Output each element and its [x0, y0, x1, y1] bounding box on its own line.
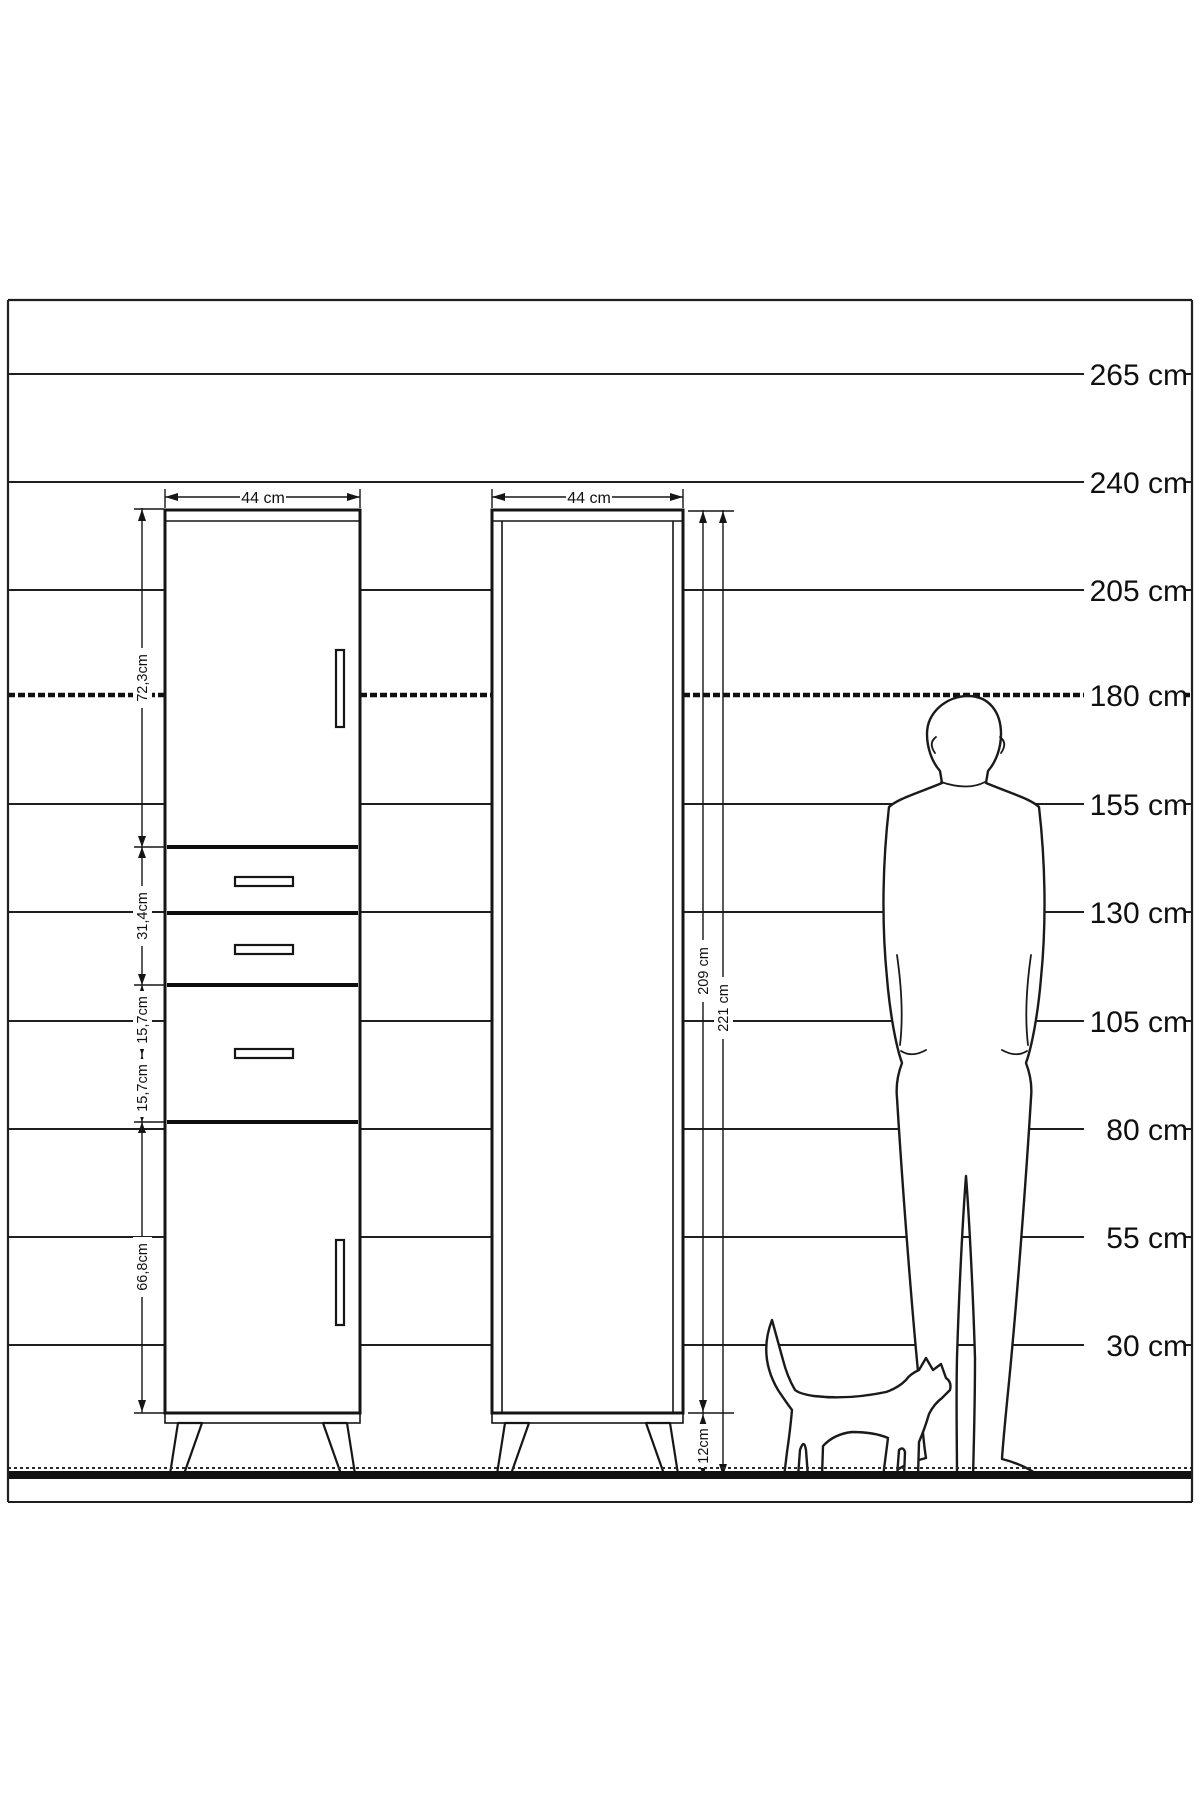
- right-cabinet-width-dimension: 44 cm: [492, 488, 683, 508]
- drawer3-handle: [235, 1049, 293, 1058]
- floor: [8, 1468, 1192, 1502]
- left-cabinet-body: [165, 510, 360, 1413]
- scale-label-180: 180 cm: [1090, 680, 1188, 713]
- drawer1-handle: [235, 877, 293, 886]
- man-silhouette: [883, 696, 1044, 1477]
- scale-label-155: 155 cm: [1090, 789, 1188, 822]
- scale-label-80: 80 cm: [1106, 1114, 1188, 1147]
- arrow-right: [670, 493, 683, 501]
- arrow-left: [492, 493, 505, 501]
- left-cabinet-front-left-leg: [170, 1423, 202, 1474]
- scale-label-240: 240 cm: [1090, 467, 1188, 500]
- scale-label-205: 205 cm: [1090, 575, 1188, 608]
- left-cabinet-width-label: 44 cm: [241, 490, 285, 507]
- drawer-height-label-upper: 15,7cm: [135, 996, 151, 1044]
- upper-door-height-label: 72,3cm: [135, 654, 151, 702]
- right-cabinet-front-left-leg: [497, 1423, 529, 1474]
- right-cabinet-body: [492, 510, 683, 1413]
- right-height-dimension-column: 209 cm 221 cm 12cm: [688, 510, 734, 1477]
- arrow-right: [347, 493, 360, 501]
- cabinet-dimension-diagram: 265 cm 240 cm 205 cm 180 cm 155 cm 130 c…: [0, 0, 1200, 1800]
- right-cabinet-width-label: 44 cm: [567, 490, 611, 507]
- left-cabinet-front-right-leg: [323, 1423, 355, 1474]
- body-height-label: 209 cm: [696, 947, 712, 995]
- dimension-diagram-page: 265 cm 240 cm 205 cm 180 cm 155 cm 130 c…: [0, 0, 1200, 1800]
- left-cabinet-width-dimension: 44 cm: [165, 488, 360, 508]
- scale-label-265: 265 cm: [1090, 359, 1188, 392]
- scale-label-130: 130 cm: [1090, 897, 1188, 930]
- upper-door-handle: [336, 650, 344, 727]
- scale-label-30: 30 cm: [1106, 1330, 1188, 1363]
- scale-label-105: 105 cm: [1090, 1006, 1188, 1039]
- leg-height-label: 12cm: [696, 1428, 712, 1463]
- right-cabinet: [492, 510, 683, 1474]
- lower-door-handle: [336, 1240, 344, 1325]
- left-section-dimension-column: 72,3cm 31,4cm 15,7cm 15,7cm 66,8cm: [133, 508, 166, 1413]
- right-cabinet-front-right-leg: [646, 1423, 678, 1474]
- floor-bar: [8, 1471, 1192, 1479]
- height-scale-labels: 265 cm 240 cm 205 cm 180 cm 155 cm 130 c…: [1084, 357, 1188, 1363]
- drawer2-handle: [235, 945, 293, 954]
- drawer-height-label-lower: 15,7cm: [135, 1064, 151, 1112]
- left-cabinet: [165, 510, 360, 1474]
- drawer-pair-height-label: 31,4cm: [135, 892, 151, 940]
- lower-door-height-label: 66,8cm: [135, 1243, 151, 1291]
- total-height-label: 221 cm: [716, 984, 732, 1032]
- scale-label-55: 55 cm: [1106, 1222, 1188, 1255]
- arrow-left: [165, 493, 178, 501]
- man-outline: [883, 696, 1044, 1477]
